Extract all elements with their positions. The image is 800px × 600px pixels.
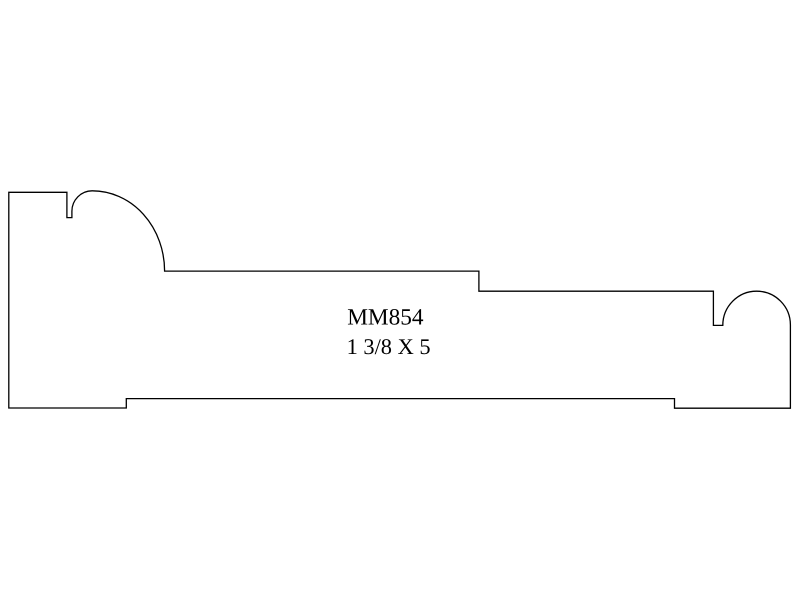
svg-text:MM854: MM854 (347, 304, 424, 330)
svg-text:1 3/8 X 5: 1 3/8 X 5 (347, 334, 431, 359)
